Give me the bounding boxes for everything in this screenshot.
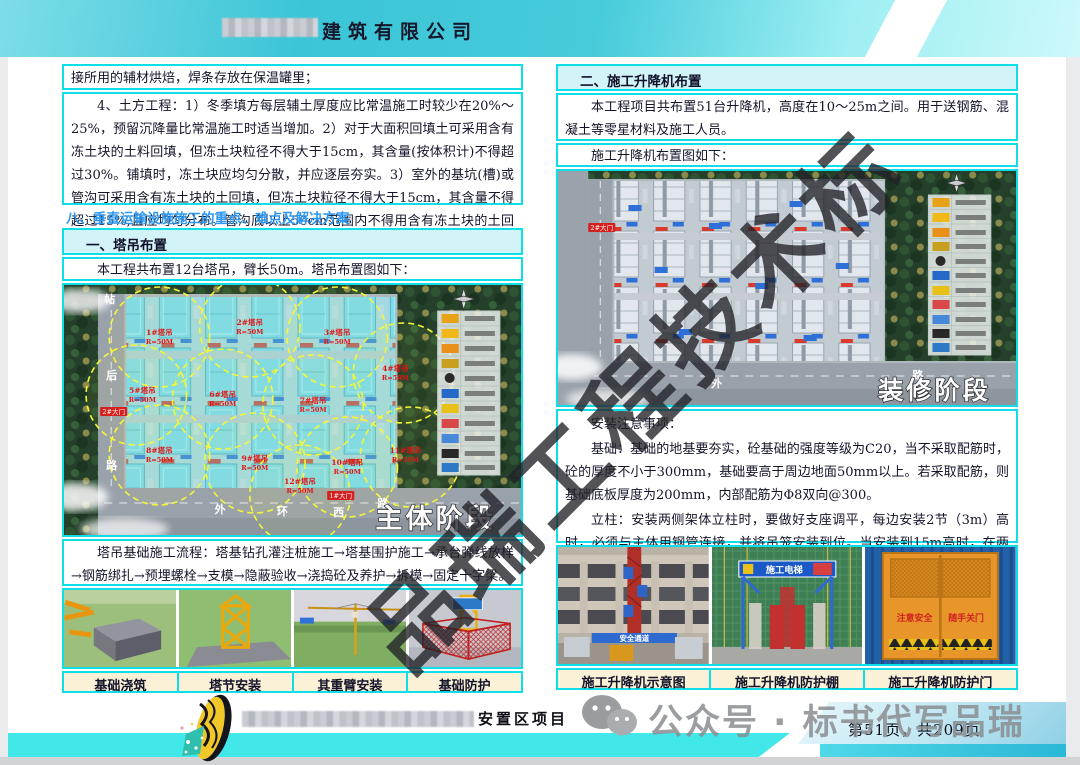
caption-foundation-protection: 基础防护: [408, 673, 521, 691]
svg-text:5#塔吊: 5#塔吊: [129, 385, 156, 395]
bottom-gray-strip: [0, 757, 1080, 765]
svg-text:R=50M: R=50M: [129, 396, 156, 404]
svg-text:安全通道: 安全通道: [619, 633, 649, 643]
tower-crane-site-plan-svg: 1#塔吊R=50M 2#塔吊R=50M 3#塔吊R=50M 4#塔吊R=50M …: [64, 285, 521, 535]
footer-logo: [178, 690, 248, 762]
svg-text:8#塔吊: 8#塔吊: [146, 445, 173, 455]
tower-crane-site-plan: 1#塔吊R=50M 2#塔吊R=50M 3#塔吊R=50M 4#塔吊R=50M …: [62, 283, 523, 537]
road-label: 路: [106, 458, 118, 472]
road-label: 西: [333, 506, 344, 519]
svg-text:R=50M: R=50M: [334, 468, 361, 476]
caption-hoist-shed: 施工升降机防护棚: [711, 670, 864, 688]
stage-label-main: 主体阶段: [375, 504, 495, 535]
left-photo-strip: [62, 588, 523, 669]
notes-title: 安装注意事项：: [558, 411, 1016, 437]
left-section-header-box: 一、塔吊布置: [62, 228, 523, 255]
right-photo-strip: 安全通道 施工电梯: [556, 545, 1018, 666]
svg-text:施工电梯: 施工电梯: [765, 564, 802, 576]
svg-text:9#塔吊: 9#塔吊: [242, 453, 269, 463]
photo-foundation-pour: [64, 590, 176, 667]
svg-text:2#大门: 2#大门: [590, 223, 613, 232]
photo-jib-install: [294, 590, 406, 667]
project-name-redacted: [242, 711, 474, 727]
svg-text:R=50M: R=50M: [241, 464, 268, 472]
photo-hoist-overview: 安全通道: [558, 547, 709, 664]
road-label: 外: [710, 376, 722, 390]
svg-text:1#塔吊: 1#塔吊: [146, 327, 173, 337]
right-section-title: 二、施工升降机布置: [558, 66, 1016, 89]
photo-foundation-protection: [409, 590, 521, 667]
gate-label-2: 2#大门: [100, 407, 127, 416]
header-diagonal-stripe: [865, 0, 947, 57]
right-section-header-box: 二、施工升降机布置: [556, 64, 1018, 91]
left-section-intro: 本工程共布置12台塔吊，臂长50m。塔吊布置图如下：: [64, 259, 521, 283]
project-name: 安置区项目: [478, 708, 568, 729]
right-notes-box: 安装注意事项： 基础：基础的地基要夯实，砼基础的强度等级为C20，当不采取配筋时…: [556, 409, 1018, 543]
wechat-watermark-text: 公众号 · 标书代写品瑞: [648, 694, 1025, 745]
right-gate-label: 2#大门: [588, 223, 615, 232]
left-paragraph-earthwork-box: 4、土方工程：1）冬季填方每层辅土厚度应比常温施工时较少在20%～25%，预留沉…: [62, 92, 523, 205]
right-photo-captions: 施工升降机示意图 施工升降机防护棚 施工升降机防护门: [556, 668, 1018, 690]
svg-text:12#塔吊: 12#塔吊: [284, 476, 316, 486]
caption-foundation-pour: 基础浇筑: [64, 673, 179, 691]
svg-text:R=50M: R=50M: [146, 338, 173, 346]
svg-text:R=50M: R=50M: [286, 487, 313, 495]
caption-jib-install: 其重臂安装: [294, 673, 409, 691]
right-section-intro: 本工程项目共布置51台升降机，高度在10～25m之间。用于送钢筋、混凝土等零星材…: [558, 95, 1016, 143]
right-plan-caption: 施工升降机布置图如下：: [558, 145, 1016, 169]
road-label: 后: [106, 368, 117, 382]
left-paragraph-weld-box: 接所用的辅材烘焙，焊条存放在保温罐里；: [62, 64, 523, 90]
svg-text:1#大门: 1#大门: [329, 491, 352, 500]
caption-hoist-door: 施工升降机防护门: [865, 670, 1016, 688]
svg-text:2#塔吊: 2#塔吊: [237, 317, 264, 327]
svg-text:6#塔吊: 6#塔吊: [209, 389, 236, 399]
svg-text:2#大门: 2#大门: [102, 407, 125, 416]
company-name: 建筑有限公司: [322, 17, 478, 44]
stage-label-decoration: 装修阶段: [878, 375, 991, 405]
svg-text:R=50M: R=50M: [146, 456, 173, 464]
svg-text:10#塔吊: 10#塔吊: [331, 457, 363, 467]
left-flow-text-box: 塔吊基础施工流程：塔基钻孔灌注桩施工→塔基围护施工→承台弹线放样→钢筋绑扎→预埋…: [62, 539, 523, 586]
caption-tower-section: 塔节安装: [179, 673, 294, 691]
tower-crane-flow-text: 塔吊基础施工流程：塔基钻孔灌注桩施工→塔基围护施工→承台弹线放样→钢筋绑扎→预埋…: [64, 541, 521, 589]
hoist-site-plan: 2#大门 外 路 装修阶段: [556, 169, 1018, 407]
svg-text:4#塔吊: 4#塔吊: [382, 363, 409, 373]
company-name-redacted: [222, 18, 318, 37]
note-foundation: 基础：基础的地基要夯实，砼基础的强度等级为C20，当不采取配筋时，砼的厚度不小于…: [558, 437, 1016, 508]
hoist-site-plan-svg: 2#大门 外 路 装修阶段: [558, 171, 1016, 405]
svg-text:随手关门: 随手关门: [949, 612, 985, 624]
photo-hoist-shed: 施工电梯: [712, 547, 863, 664]
photo-hoist-door: 注意安全 随手关门: [865, 547, 1016, 664]
caption-hoist-overview: 施工升降机示意图: [558, 670, 711, 688]
svg-text:3#塔吊: 3#塔吊: [324, 327, 351, 337]
right-plan-caption-box: 施工升降机布置图如下：: [556, 143, 1018, 167]
right-section-intro-box: 本工程项目共布置51台升降机，高度在10～25m之间。用于送钢筋、混凝土等零星材…: [556, 93, 1018, 141]
plan-legend: [438, 311, 500, 475]
left-paragraph-weld: 接所用的辅材烘焙，焊条存放在保温罐里；: [64, 66, 521, 91]
svg-text:R=50M: R=50M: [209, 400, 236, 408]
left-photo-captions: 基础浇筑 塔节安装 其重臂安装 基础防护: [62, 671, 523, 693]
left-section-title: 一、塔吊布置: [64, 230, 521, 253]
chapter-heading: 八、垂直运输设施施工的重点、难点及解决方案: [66, 207, 350, 227]
svg-text:11#塔吊: 11#塔吊: [390, 445, 422, 455]
svg-text:注意安全: 注意安全: [897, 612, 934, 624]
svg-text:R=50M: R=50M: [300, 406, 327, 414]
wechat-icon: [580, 692, 638, 740]
svg-text:R=50M: R=50M: [236, 328, 263, 336]
photo-tower-section-install: [179, 590, 291, 667]
svg-text:R=50M: R=50M: [382, 374, 409, 382]
svg-text:7#塔吊: 7#塔吊: [300, 395, 327, 405]
road-label: 外: [214, 502, 226, 516]
page-header-band: 建筑有限公司: [0, 0, 1080, 57]
left-section-intro-box: 本工程共布置12台塔吊，臂长50m。塔吊布置图如下：: [62, 257, 523, 281]
gate-label-1: 1#大门: [327, 491, 354, 500]
svg-text:R=50M: R=50M: [324, 338, 351, 346]
road-label: 环: [277, 505, 288, 518]
svg-text:R=50M: R=50M: [392, 456, 419, 464]
plan-legend: [928, 195, 990, 355]
footer-right-strip: [820, 744, 1066, 757]
